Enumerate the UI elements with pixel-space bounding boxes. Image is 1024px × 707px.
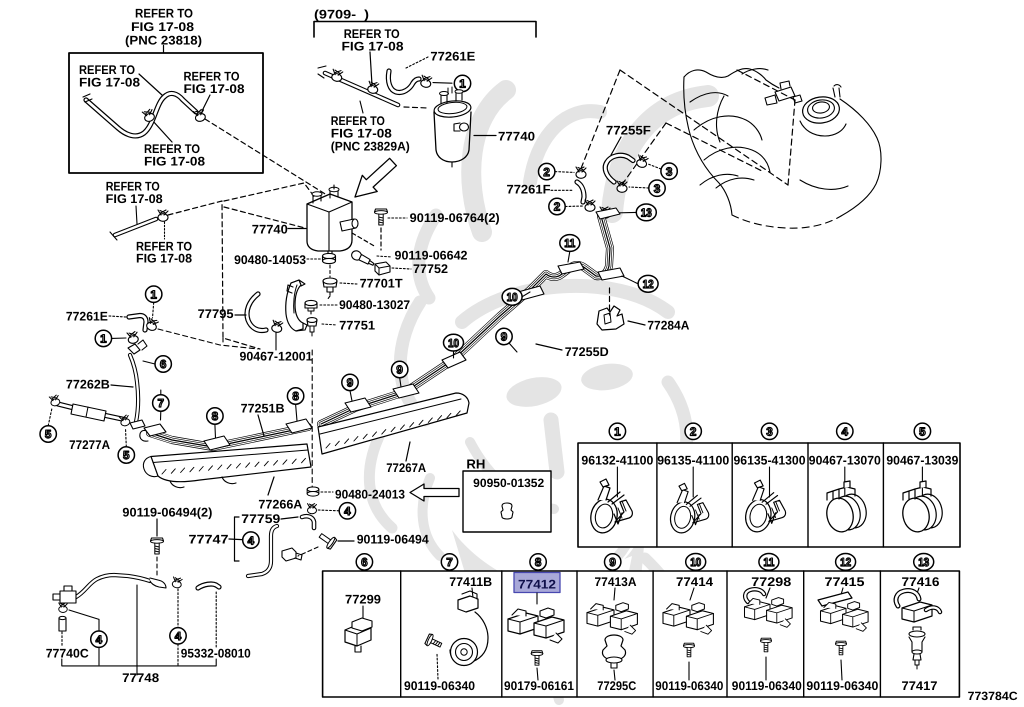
- svg-text:FIG 17-08: FIG 17-08: [342, 40, 404, 54]
- svg-text:90119-06764(2): 90119-06764(2): [410, 211, 500, 225]
- svg-text:77759: 77759: [241, 512, 280, 526]
- svg-text:12: 12: [840, 557, 851, 569]
- svg-text:FIG 17-08: FIG 17-08: [79, 76, 140, 90]
- svg-text:FIG 17-08: FIG 17-08: [144, 155, 205, 169]
- svg-text:77747: 77747: [189, 533, 229, 547]
- svg-text:77415: 77415: [825, 575, 865, 589]
- svg-text:77752: 77752: [413, 262, 448, 276]
- svg-text:7: 7: [446, 557, 453, 569]
- svg-text:3: 3: [766, 427, 773, 439]
- svg-text:3: 3: [654, 183, 661, 195]
- svg-text:8: 8: [292, 391, 299, 403]
- svg-text:77255F: 77255F: [606, 124, 651, 138]
- svg-text:77795: 77795: [198, 307, 234, 321]
- svg-text:77251B: 77251B: [241, 401, 285, 415]
- svg-text:7: 7: [158, 398, 165, 410]
- svg-text:90950-01352: 90950-01352: [473, 476, 544, 490]
- svg-text:77261E: 77261E: [66, 309, 108, 323]
- svg-text:FIG 17-08: FIG 17-08: [131, 20, 194, 34]
- svg-text:77740: 77740: [252, 223, 288, 237]
- svg-text:REFER TO: REFER TO: [135, 7, 193, 21]
- svg-text:77266A: 77266A: [258, 498, 302, 512]
- svg-text:77261F: 77261F: [507, 183, 551, 197]
- svg-text:90480-24013: 90480-24013: [335, 488, 405, 502]
- svg-text:90119-06642: 90119-06642: [395, 249, 468, 263]
- svg-text:FIG 17-08: FIG 17-08: [331, 127, 392, 141]
- svg-text:96135-41300: 96135-41300: [734, 454, 806, 468]
- svg-text:1: 1: [614, 427, 621, 439]
- svg-text:96132-41100: 96132-41100: [581, 454, 653, 468]
- svg-text:11: 11: [763, 557, 775, 569]
- svg-text:77261E: 77261E: [430, 50, 475, 64]
- svg-text:77701T: 77701T: [360, 277, 403, 291]
- svg-text:77751: 77751: [339, 319, 375, 333]
- svg-text:90467-12001: 90467-12001: [240, 350, 313, 364]
- svg-text:(PNC 23829A): (PNC 23829A): [331, 140, 410, 154]
- svg-text:4: 4: [842, 427, 849, 439]
- svg-text:77412: 77412: [518, 577, 556, 591]
- svg-text:13: 13: [641, 208, 652, 220]
- svg-text:FIG 17-08: FIG 17-08: [184, 82, 245, 96]
- svg-text:1: 1: [100, 334, 107, 346]
- svg-text:77740: 77740: [498, 130, 535, 144]
- svg-text:6: 6: [361, 557, 368, 569]
- svg-text:90467-13070: 90467-13070: [809, 454, 881, 468]
- svg-text:77255D: 77255D: [565, 345, 609, 359]
- svg-text:1: 1: [459, 79, 466, 91]
- svg-text:12: 12: [643, 279, 654, 291]
- svg-text:77284A: 77284A: [647, 319, 689, 333]
- svg-text:9: 9: [501, 332, 508, 344]
- svg-text:4: 4: [175, 631, 182, 643]
- svg-text:77416: 77416: [902, 575, 940, 589]
- svg-text:77277A: 77277A: [69, 438, 110, 452]
- svg-text:90119-06340: 90119-06340: [806, 679, 878, 693]
- svg-text:90119-06340: 90119-06340: [732, 679, 802, 693]
- svg-text:77417: 77417: [902, 679, 938, 693]
- svg-text:77411B: 77411B: [449, 575, 492, 589]
- svg-text:6: 6: [160, 359, 167, 371]
- svg-text:9: 9: [347, 378, 354, 390]
- svg-text:96135-41100: 96135-41100: [657, 454, 729, 468]
- svg-text:FIG 17-08: FIG 17-08: [106, 192, 163, 206]
- svg-text:90480-13027: 90480-13027: [339, 298, 410, 312]
- svg-text:9: 9: [396, 365, 403, 377]
- svg-text:8: 8: [212, 411, 219, 423]
- svg-text:(9709- ): (9709- ): [314, 8, 369, 22]
- svg-text:77267A: 77267A: [386, 461, 426, 475]
- svg-text:77414: 77414: [676, 575, 713, 589]
- svg-text:10: 10: [507, 292, 518, 304]
- svg-text:95332-08010: 95332-08010: [181, 647, 251, 661]
- svg-text:77299: 77299: [345, 593, 381, 607]
- svg-text:4: 4: [96, 634, 103, 646]
- svg-text:5: 5: [919, 427, 926, 439]
- svg-text:77748: 77748: [122, 671, 159, 685]
- svg-text:77413A: 77413A: [595, 575, 637, 589]
- svg-text:13: 13: [918, 557, 929, 569]
- svg-text:77740C: 77740C: [46, 647, 89, 661]
- svg-text:90179-06161: 90179-06161: [504, 679, 574, 693]
- svg-text:90480-14053: 90480-14053: [234, 253, 306, 267]
- svg-text:2: 2: [690, 427, 697, 439]
- svg-text:4: 4: [248, 535, 255, 547]
- svg-text:90119-06340: 90119-06340: [655, 679, 723, 693]
- svg-text:2: 2: [554, 202, 561, 214]
- svg-text:1: 1: [150, 289, 157, 301]
- svg-text:5: 5: [123, 450, 130, 462]
- svg-text:4: 4: [344, 506, 351, 518]
- svg-text:773784C: 773784C: [968, 689, 1018, 703]
- svg-text:10: 10: [690, 557, 701, 569]
- svg-text:5: 5: [45, 429, 52, 441]
- svg-text:RH: RH: [466, 457, 485, 472]
- svg-text:90119-06340: 90119-06340: [404, 679, 475, 693]
- svg-text:10: 10: [448, 338, 459, 350]
- svg-text:90119-06494(2): 90119-06494(2): [122, 506, 212, 520]
- svg-text:77295C: 77295C: [597, 679, 636, 693]
- svg-text:90119-06494: 90119-06494: [357, 533, 429, 547]
- svg-text:77298: 77298: [751, 575, 791, 589]
- svg-text:90467-13039: 90467-13039: [886, 454, 958, 468]
- svg-text:11: 11: [564, 238, 576, 250]
- svg-text:2: 2: [543, 167, 550, 179]
- svg-text:3: 3: [666, 166, 673, 178]
- svg-text:8: 8: [535, 557, 542, 569]
- svg-text:FIG 17-08: FIG 17-08: [136, 251, 192, 265]
- svg-text:9: 9: [609, 557, 616, 569]
- svg-text:77262B: 77262B: [66, 378, 110, 392]
